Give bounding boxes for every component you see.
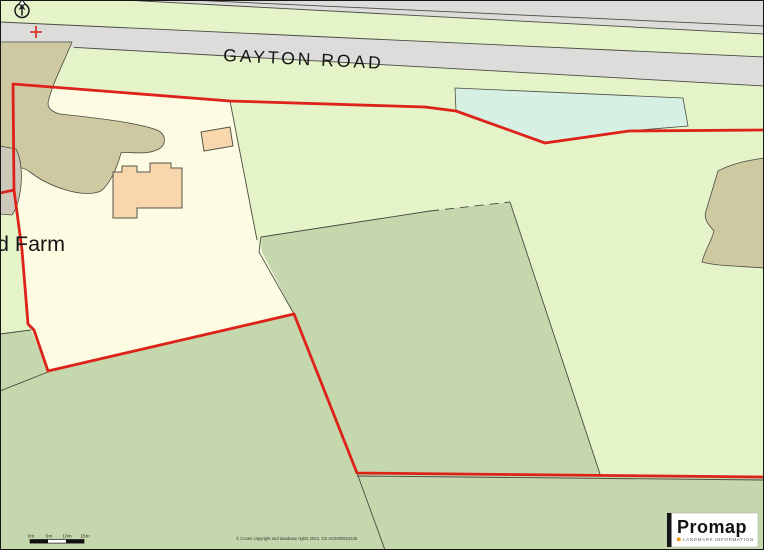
promap-map-svg: GAYTON ROAD d Farm 0m 5m 10m 15m © Crown… — [0, 0, 764, 550]
logo-orange-square-icon — [677, 538, 681, 542]
farm-name-label: d Farm — [0, 232, 65, 256]
scale-tick-label: 5m — [46, 534, 53, 540]
scale-tick-label: 0m — [28, 534, 35, 540]
scale-tick-label: 15m — [80, 534, 89, 540]
logo-brand-text: Promap — [677, 517, 747, 537]
scale-tick-label: 10m — [62, 534, 71, 540]
scale-bar-segment — [30, 540, 48, 544]
promap-logo: Promap LANDMARK INFORMATION — [667, 513, 758, 547]
scale-bar-segment — [66, 540, 84, 544]
logo-left-bar — [667, 513, 672, 547]
map-export-view: GAYTON ROAD d Farm 0m 5m 10m 15m © Crown… — [0, 0, 764, 550]
logo-subtitle-text: LANDMARK INFORMATION — [683, 537, 754, 542]
copyright-text: © Crown copyright and database rights 20… — [236, 536, 358, 541]
